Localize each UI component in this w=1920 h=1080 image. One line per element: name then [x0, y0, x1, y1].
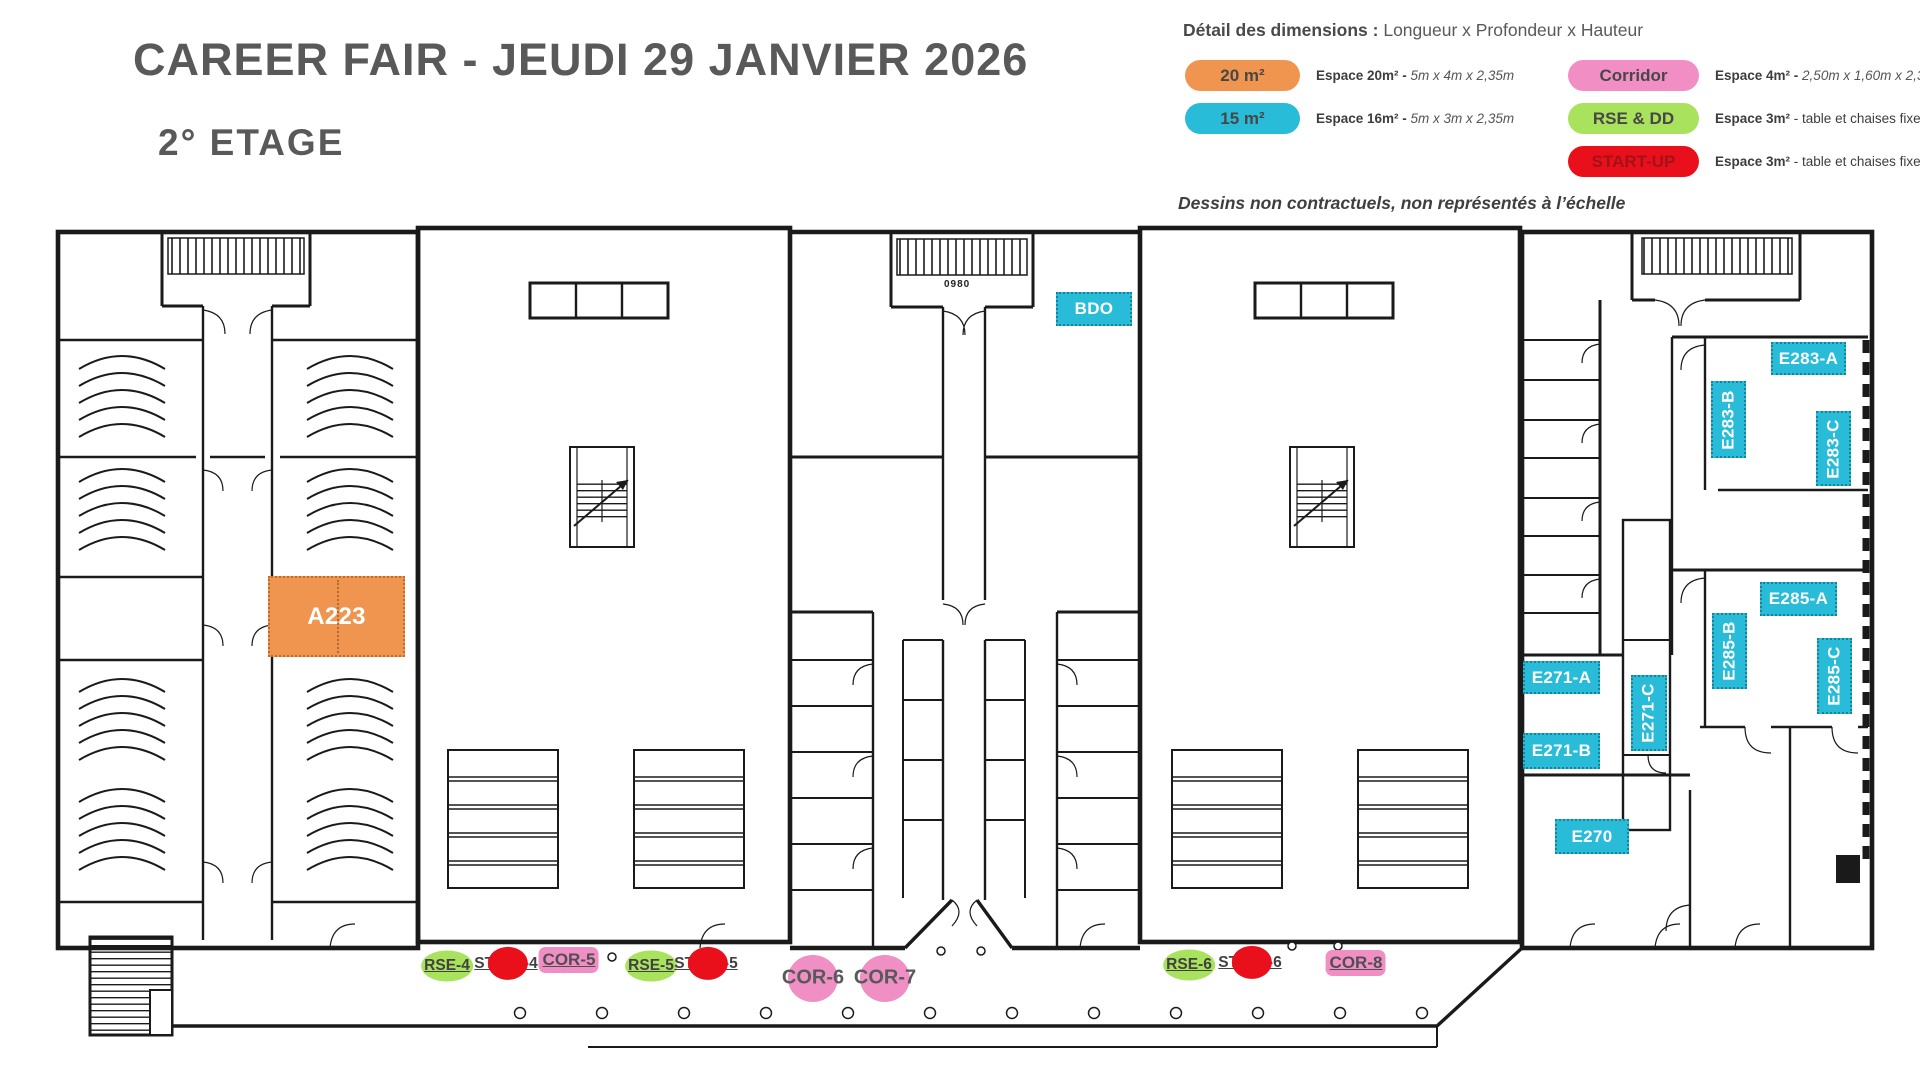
room-label-text: E270 [1572, 827, 1613, 847]
booth-COR-5: COR-5 [543, 950, 596, 970]
room-label-E271-C: E271-C [1631, 675, 1667, 751]
room-label-text: E271-C [1639, 683, 1659, 742]
booth-RSE-4: RSE-4 [424, 957, 470, 975]
booth-label: RSE-6 [1166, 956, 1212, 974]
room-label-text: E285-B [1720, 621, 1740, 680]
booth-label: COR-7 [854, 967, 916, 990]
room-label-text: E283-C [1824, 419, 1844, 478]
startup-ellipse [688, 947, 728, 980]
booth-label: COR-8 [1330, 953, 1383, 973]
floor-plan-svg [0, 0, 1920, 1080]
room-label-E283-A: E283-A [1771, 342, 1846, 375]
room-label-E271-B: E271-B [1523, 733, 1600, 769]
booth-label: COR-5 [543, 950, 596, 970]
room-label-text: E283-B [1719, 390, 1739, 449]
room-label-E285-C: E285-C [1817, 638, 1852, 714]
room-label-text: E271-A [1532, 668, 1591, 688]
floor-plan: 0980 A223BDOE283-AE283-BE283-CE285-AE285… [0, 0, 1920, 1080]
room-label-text: E283-A [1779, 349, 1838, 369]
stair-annotation: 0980 [944, 279, 970, 290]
startup-ellipse [1232, 946, 1272, 979]
room-label-BDO: BDO [1056, 292, 1132, 326]
room-label-E271-A: E271-A [1523, 661, 1600, 694]
startup-ellipse [488, 947, 528, 980]
room-label-E283-B: E283-B [1711, 381, 1746, 458]
room-label-text: E285-C [1825, 646, 1845, 705]
booth-START-4: START-4 [474, 955, 537, 973]
room-label-E283-C: E283-C [1816, 411, 1851, 486]
room-label-A223: A223 [268, 576, 405, 657]
room-divider [337, 580, 339, 653]
room-label-text: E271-B [1532, 741, 1591, 761]
booth-START-6: START-6 [1218, 954, 1281, 972]
room-label-text: BDO [1075, 299, 1114, 319]
booth-START-5: START-5 [674, 955, 737, 973]
booth-RSE-6: RSE-6 [1166, 956, 1212, 974]
booth-label: RSE-4 [424, 957, 470, 975]
booth-RSE-5: RSE-5 [628, 957, 674, 975]
room-label-E285-B: E285-B [1712, 613, 1747, 689]
booth-COR-7: COR-7 [854, 967, 916, 990]
room-label-text: E285-A [1769, 589, 1828, 609]
booth-label: RSE-5 [628, 957, 674, 975]
career-fair-floor-plan-page: CAREER FAIR - JEUDI 29 JANVIER 2026 2° E… [0, 0, 1920, 1080]
booth-COR-8: COR-8 [1330, 953, 1383, 973]
room-label-E285-A: E285-A [1760, 582, 1837, 616]
booth-label: COR-6 [782, 967, 844, 990]
room-label-E270: E270 [1555, 819, 1629, 854]
booth-COR-6: COR-6 [782, 967, 844, 990]
